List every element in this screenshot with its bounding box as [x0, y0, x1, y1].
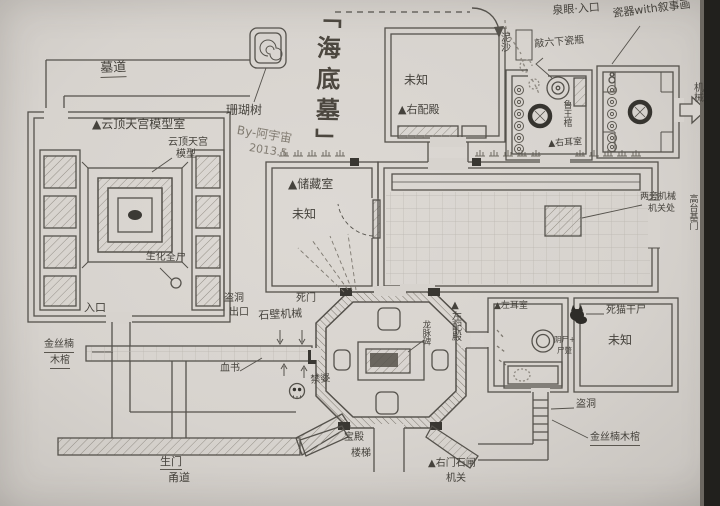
label-robber-exit-1: 盗洞	[224, 294, 244, 305]
left-ear-room	[484, 298, 568, 396]
label-model-room: ▲云顶天宫模型室	[92, 118, 185, 131]
label-hall-stairs-1: 宝殿	[344, 433, 364, 444]
label-hall-stairs-2: 楼梯	[351, 449, 371, 460]
black-cat-icon	[570, 305, 587, 324]
label-jinpo: 禁婆	[310, 374, 331, 387]
tomb-map-sketch: 「海底墓」 墓道 珊瑚树 By-阿宇宙 2013.5 ▲云顶天宫模型室 云顶天宫…	[0, 0, 720, 506]
label-dead-cat: 死猫干尸	[606, 306, 646, 317]
paper-edge-shadow	[700, 0, 704, 506]
label-right-ear-room: ▲右耳室	[548, 138, 582, 149]
label-dragon-stele: 龙脉碑	[421, 320, 430, 346]
label-left-ear-room: ▲左耳室	[494, 302, 528, 311]
label-storage-unknown: 未知	[292, 208, 316, 221]
label-high-platform-door: 高台基门	[687, 194, 696, 230]
label-right-gate-1: ▲右门石闸	[428, 459, 476, 470]
label-right-gate-2: 机关	[446, 474, 466, 485]
label-lu-coffin: 鲁王棺	[561, 100, 570, 127]
map-title: 「海底墓」	[311, 4, 339, 159]
label-right-side-hall: ▲右配殿	[398, 104, 439, 116]
label-br-unknown: 未知	[608, 334, 632, 347]
label-palace-model-2: 模型	[176, 150, 196, 161]
label-storage-room: ▲储藏室	[288, 178, 333, 191]
label-jar-note-1: 阴尸+	[554, 336, 575, 344]
label-tomb-passage: 墓道	[100, 61, 127, 78]
coral-tree-marker-icon	[250, 28, 286, 102]
label-robber-hole: 盗洞	[576, 400, 596, 411]
label-hall-mech-2: 机关处	[648, 205, 675, 214]
label-life-door: 生门	[160, 456, 182, 470]
label-blood-letter: 血书	[220, 364, 240, 375]
label-nanmu-coffin-right: 金丝楠木棺	[590, 433, 640, 446]
right-side-hall-room	[385, 28, 505, 147]
label-bio-corpse: 生化全尸	[145, 252, 185, 265]
plank-corridor	[86, 330, 312, 438]
skull-icon	[290, 384, 305, 400]
label-exit-machinery: 机械	[691, 82, 702, 102]
label-left-side-hall: ▲左配殿	[449, 300, 460, 341]
story-porcelain-room	[597, 26, 684, 158]
robber-hole-icon	[530, 106, 550, 126]
photo-background-edge	[704, 0, 720, 506]
right-ear-room	[506, 58, 592, 166]
label-death-door: 死门	[296, 294, 316, 305]
label-hall-mech-1: 两旁机械	[640, 193, 676, 202]
main-hall	[350, 142, 660, 296]
label-sediment: 泥沙	[498, 32, 509, 52]
label-entrance: 入口	[84, 302, 106, 314]
label-robber-exit-2: 出口	[229, 308, 249, 319]
porcelain-vase-icon	[547, 77, 569, 99]
label-palace-model-1: 云顶天宫	[168, 138, 208, 149]
label-stone-wall-mech: 石壁机械	[258, 308, 303, 322]
label-coral-tree: 珊瑚树	[226, 104, 262, 117]
label-rh-unknown: 未知	[404, 74, 428, 87]
label-nanmu-coffin-2: 木棺	[50, 356, 70, 369]
label-jar-note-2: 尸蹩	[557, 347, 572, 355]
robber-hole-icon	[630, 102, 650, 122]
label-nanmu-coffin-1: 金丝楠	[44, 340, 74, 353]
tomb-passage	[46, 60, 250, 112]
label-life-corridor: 甬道	[168, 472, 190, 484]
